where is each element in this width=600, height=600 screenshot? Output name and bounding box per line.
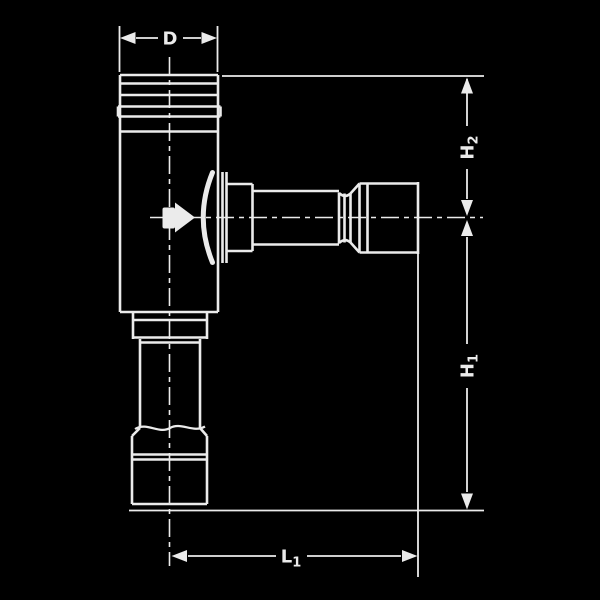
technical-drawing-canvas: D H2 H1 L1: [0, 0, 600, 600]
flow-arrow-tail: [163, 208, 176, 229]
dimension-label-d: D: [163, 29, 178, 50]
